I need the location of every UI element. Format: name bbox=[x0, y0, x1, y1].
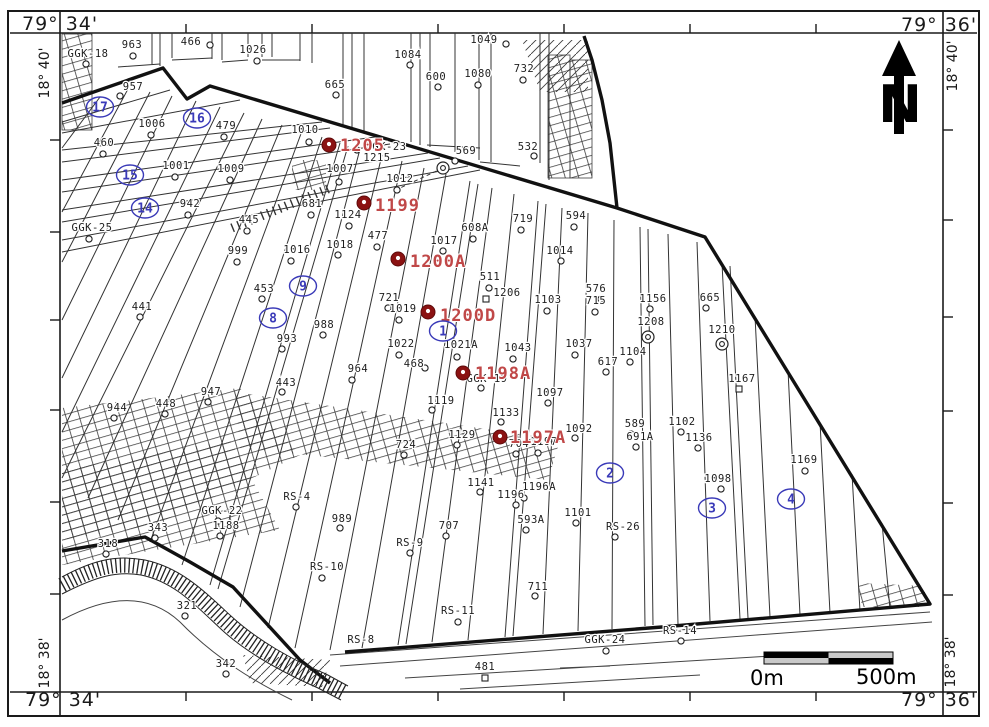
well-marker bbox=[221, 134, 227, 140]
well-marker bbox=[234, 259, 240, 265]
red-well-marker-dot bbox=[327, 142, 331, 146]
well-marker bbox=[486, 285, 492, 291]
well-marker bbox=[137, 314, 143, 320]
well-label: 318 bbox=[98, 538, 118, 550]
block-number: 15 bbox=[122, 169, 138, 184]
well-marker bbox=[454, 442, 460, 448]
red-well-label: 1200A bbox=[410, 252, 466, 272]
well-marker bbox=[223, 671, 229, 677]
well-label: 999 bbox=[228, 245, 248, 257]
well-marker bbox=[695, 445, 701, 451]
well-label: 1080 bbox=[464, 68, 491, 80]
well-marker bbox=[333, 92, 339, 98]
well-label: 711 bbox=[528, 581, 548, 593]
red-well-marker-dot bbox=[362, 200, 366, 204]
well-label: 1136 bbox=[685, 432, 712, 444]
well-marker bbox=[346, 223, 352, 229]
well-marker bbox=[518, 227, 524, 233]
well-marker bbox=[396, 352, 402, 358]
well-label: 617 bbox=[598, 356, 618, 368]
well-label: 665 bbox=[325, 79, 345, 91]
top-parcel-lines bbox=[118, 33, 549, 180]
well-label: 532 bbox=[518, 141, 538, 153]
well-marker bbox=[544, 308, 550, 314]
red-well-marker-dot bbox=[498, 434, 502, 438]
well-label: 468 bbox=[404, 358, 424, 370]
coord-left-bottom: 18° 38' bbox=[37, 627, 53, 699]
coord-top-right: 79° 36' bbox=[901, 14, 977, 36]
red-well-marker-dot bbox=[461, 370, 465, 374]
well-marker bbox=[349, 377, 355, 383]
well-marker bbox=[510, 356, 516, 362]
well-marker bbox=[401, 452, 407, 458]
well-label: 1188 bbox=[212, 520, 239, 532]
north-arrow-icon: N bbox=[878, 40, 922, 135]
well-label: 732 bbox=[514, 63, 534, 75]
well-marker bbox=[454, 354, 460, 360]
well-marker bbox=[394, 187, 400, 193]
well-marker bbox=[558, 258, 564, 264]
well-marker bbox=[612, 534, 618, 540]
well-marker bbox=[182, 613, 188, 619]
coord-right-top: 18° 40' bbox=[945, 30, 961, 102]
well-label: 479 bbox=[216, 120, 236, 132]
well-label: 1010 bbox=[291, 124, 318, 136]
well-marker bbox=[429, 407, 435, 413]
well-marker bbox=[531, 153, 537, 159]
block-number: 3 bbox=[708, 502, 716, 517]
well-label: 594 bbox=[566, 210, 586, 222]
well-label: 1001 bbox=[162, 160, 189, 172]
well-label: RS-8 bbox=[347, 634, 374, 646]
red-well-label: 1197A bbox=[510, 428, 566, 448]
red-well-marker-dot bbox=[426, 309, 430, 313]
coord-right-bottom: 18° 38' bbox=[943, 626, 959, 698]
block-number: 17 bbox=[92, 101, 108, 116]
well-marker bbox=[337, 525, 343, 531]
well-label: GGK-18 bbox=[68, 48, 109, 60]
well-marker bbox=[477, 489, 483, 495]
south-parallel-lines bbox=[330, 612, 932, 689]
well-marker bbox=[633, 444, 639, 450]
block-number: 14 bbox=[137, 202, 153, 217]
red-well-label: 1199 bbox=[375, 196, 420, 216]
well-marker bbox=[100, 151, 106, 157]
well-label: RS-11 bbox=[441, 605, 475, 617]
well-label: 481 bbox=[475, 661, 495, 673]
well-label: 593A bbox=[517, 514, 544, 526]
block-number: 9 bbox=[299, 280, 307, 295]
well-label: GGK-24 bbox=[585, 634, 626, 646]
well-marker bbox=[573, 520, 579, 526]
well-label: 1101 bbox=[564, 507, 591, 519]
well-marker bbox=[279, 389, 285, 395]
well-marker bbox=[592, 309, 598, 315]
well-marker bbox=[111, 415, 117, 421]
well-marker bbox=[498, 419, 504, 425]
well-marker bbox=[227, 177, 233, 183]
well-marker bbox=[545, 400, 551, 406]
well-marker bbox=[205, 399, 211, 405]
well-marker-double-inner bbox=[646, 335, 651, 340]
well-marker-square bbox=[736, 386, 742, 392]
well-label: 466 bbox=[181, 36, 201, 48]
well-label: 1196A bbox=[522, 481, 556, 493]
well-label: 1119 bbox=[427, 395, 454, 407]
well-marker bbox=[117, 93, 123, 99]
well-marker bbox=[678, 429, 684, 435]
well-label: 453 bbox=[254, 283, 274, 295]
well-label: 1007 bbox=[326, 163, 353, 175]
well-label: RS-4 bbox=[283, 491, 310, 503]
well-marker bbox=[185, 212, 191, 218]
well-label: 1167 bbox=[728, 373, 755, 385]
well-marker bbox=[254, 58, 260, 64]
well-marker-double-inner bbox=[720, 342, 725, 347]
well-label: 719 bbox=[513, 213, 533, 225]
well-label: 665 bbox=[700, 292, 720, 304]
well-label: 1156 bbox=[639, 293, 666, 305]
well-label: 1037 bbox=[565, 338, 592, 350]
well-marker bbox=[802, 468, 808, 474]
well-label: 1018 bbox=[326, 239, 353, 251]
well-marker bbox=[279, 346, 285, 352]
well-marker bbox=[647, 306, 653, 312]
well-label: 1006 bbox=[138, 118, 165, 130]
coord-top-left: 79° 34' bbox=[22, 13, 98, 35]
well-marker-square bbox=[483, 296, 489, 302]
well-marker bbox=[470, 236, 476, 242]
well-label: 1016 bbox=[283, 244, 310, 256]
well-marker bbox=[513, 451, 519, 457]
well-marker bbox=[718, 486, 724, 492]
well-marker bbox=[172, 174, 178, 180]
well-label: GGK-25 bbox=[72, 222, 113, 234]
well-marker bbox=[162, 411, 168, 417]
well-marker bbox=[478, 385, 484, 391]
well-marker bbox=[207, 42, 213, 48]
well-label: 715 bbox=[586, 295, 606, 307]
well-label: 1196 bbox=[497, 489, 524, 501]
well-marker bbox=[475, 82, 481, 88]
well-label: RS-14 bbox=[663, 625, 697, 637]
well-label: 1022 bbox=[387, 338, 414, 350]
well-marker bbox=[571, 224, 577, 230]
block-number: 16 bbox=[189, 112, 205, 127]
well-marker bbox=[86, 236, 92, 242]
well-label: 989 bbox=[332, 513, 352, 525]
well-label: 947 bbox=[201, 386, 221, 398]
well-label: 942 bbox=[180, 198, 200, 210]
well-marker bbox=[308, 212, 314, 218]
well-label: 600 bbox=[426, 71, 446, 83]
block-number: 4 bbox=[787, 493, 795, 508]
well-label: 1009 bbox=[217, 163, 244, 175]
well-label: 1124 bbox=[334, 209, 361, 221]
well-marker bbox=[603, 648, 609, 654]
coord-bottom-right: 79° 36' bbox=[901, 689, 977, 711]
well-marker bbox=[217, 533, 223, 539]
red-well-marker-dot bbox=[396, 256, 400, 260]
well-label: RS-9 bbox=[396, 537, 423, 549]
block-number: 1 bbox=[439, 325, 447, 340]
well-marker bbox=[407, 550, 413, 556]
well-label: 1019 bbox=[389, 303, 416, 315]
well-marker bbox=[513, 502, 519, 508]
well-label: 724 bbox=[396, 439, 416, 451]
coord-left-top: 18° 40' bbox=[37, 37, 53, 109]
well-label: 1092 bbox=[565, 423, 592, 435]
red-well-label: 1200D bbox=[440, 306, 496, 326]
well-label: 1103 bbox=[534, 294, 561, 306]
well-marker bbox=[627, 359, 633, 365]
well-label: 988 bbox=[314, 319, 334, 331]
well-marker bbox=[288, 258, 294, 264]
well-marker bbox=[535, 450, 541, 456]
red-well-label: 1198A bbox=[475, 364, 531, 384]
block-number: 8 bbox=[269, 312, 277, 327]
well-marker bbox=[603, 369, 609, 375]
well-label: 1014 bbox=[546, 245, 573, 257]
stream-hatch-band bbox=[62, 558, 348, 700]
well-label: 944 bbox=[107, 402, 127, 414]
well-label: 1129 bbox=[448, 429, 475, 441]
well-marker bbox=[152, 535, 158, 541]
well-marker bbox=[532, 593, 538, 599]
well-label: 460 bbox=[94, 137, 114, 149]
well-marker bbox=[443, 533, 449, 539]
well-label: 1102 bbox=[668, 416, 695, 428]
well-label: 441 bbox=[132, 301, 152, 313]
well-label: 443 bbox=[276, 377, 296, 389]
well-label: 342 bbox=[216, 658, 236, 670]
well-label: 1021A bbox=[444, 339, 478, 351]
well-label: 343 bbox=[148, 522, 168, 534]
well-marker bbox=[523, 527, 529, 533]
well-marker bbox=[319, 575, 325, 581]
well-marker bbox=[336, 179, 342, 185]
well-marker bbox=[335, 252, 341, 258]
red-well-label: 1205 bbox=[340, 136, 385, 156]
well-label: 1098 bbox=[704, 473, 731, 485]
well-label: 511 bbox=[480, 271, 500, 283]
well-label: 1104 bbox=[619, 346, 646, 358]
well-marker bbox=[83, 61, 89, 67]
well-marker bbox=[148, 132, 154, 138]
well-label: 1026 bbox=[239, 44, 266, 56]
well-marker bbox=[407, 62, 413, 68]
well-marker-square bbox=[482, 675, 488, 681]
well-label: RS-26 bbox=[606, 521, 640, 533]
well-label: 477 bbox=[368, 230, 388, 242]
well-label: 1049 bbox=[470, 34, 497, 46]
well-marker bbox=[293, 504, 299, 510]
well-label: 321 bbox=[177, 600, 197, 612]
well-marker bbox=[306, 139, 312, 145]
well-label: 1017 bbox=[430, 235, 457, 247]
well-label: 1133 bbox=[492, 407, 519, 419]
well-label: 993 bbox=[277, 333, 297, 345]
well-marker bbox=[259, 296, 265, 302]
borehole-location-map: GGK-189634661026957108410496001080732665… bbox=[0, 0, 989, 727]
well-label: 1141 bbox=[467, 477, 494, 489]
well-label: GGK-22 bbox=[202, 505, 243, 517]
well-marker bbox=[374, 244, 380, 250]
well-marker bbox=[572, 352, 578, 358]
well-marker bbox=[503, 41, 509, 47]
well-marker bbox=[396, 317, 402, 323]
scale-bar bbox=[764, 652, 893, 664]
well-label: RS-10 bbox=[310, 561, 344, 573]
well-marker bbox=[130, 53, 136, 59]
well-marker bbox=[244, 228, 250, 234]
well-marker bbox=[520, 77, 526, 83]
hatched-areas bbox=[62, 34, 925, 687]
well-marker bbox=[320, 332, 326, 338]
well-label: 569 bbox=[456, 145, 476, 157]
well-marker bbox=[103, 551, 109, 557]
well-label: 707 bbox=[439, 520, 459, 532]
well-marker bbox=[703, 305, 709, 311]
well-label: 1012 bbox=[386, 173, 413, 185]
well-label: 1043 bbox=[504, 342, 531, 354]
well-label: 1208 bbox=[637, 316, 664, 328]
well-label: 1210 bbox=[708, 324, 735, 336]
well-label: 691A bbox=[626, 431, 653, 443]
well-marker bbox=[435, 84, 441, 90]
well-label: 445 bbox=[239, 214, 259, 226]
well-label: 1169 bbox=[790, 454, 817, 466]
well-label: 1206 bbox=[493, 287, 520, 299]
well-marker bbox=[572, 435, 578, 441]
map-canvas: GGK-189634661026957108410496001080732665… bbox=[0, 0, 989, 727]
scale-left-label: 0m bbox=[750, 666, 784, 690]
well-label: 957 bbox=[123, 81, 143, 93]
well-label: 608A bbox=[461, 222, 488, 234]
well-label: 1097 bbox=[536, 387, 563, 399]
well-label: 964 bbox=[348, 363, 368, 375]
block-number: 2 bbox=[606, 467, 614, 482]
well-label: 589 bbox=[625, 418, 645, 430]
well-marker bbox=[678, 638, 684, 644]
well-label: 448 bbox=[156, 398, 176, 410]
well-marker bbox=[455, 619, 461, 625]
well-label: 576 bbox=[586, 283, 606, 295]
well-label: 681 bbox=[302, 198, 322, 210]
well-marker-double-inner bbox=[441, 166, 446, 171]
well-label: 963 bbox=[122, 39, 142, 51]
scale-right-label: 500m bbox=[856, 665, 917, 689]
well-marker bbox=[452, 158, 458, 164]
well-label: 1084 bbox=[394, 49, 421, 61]
